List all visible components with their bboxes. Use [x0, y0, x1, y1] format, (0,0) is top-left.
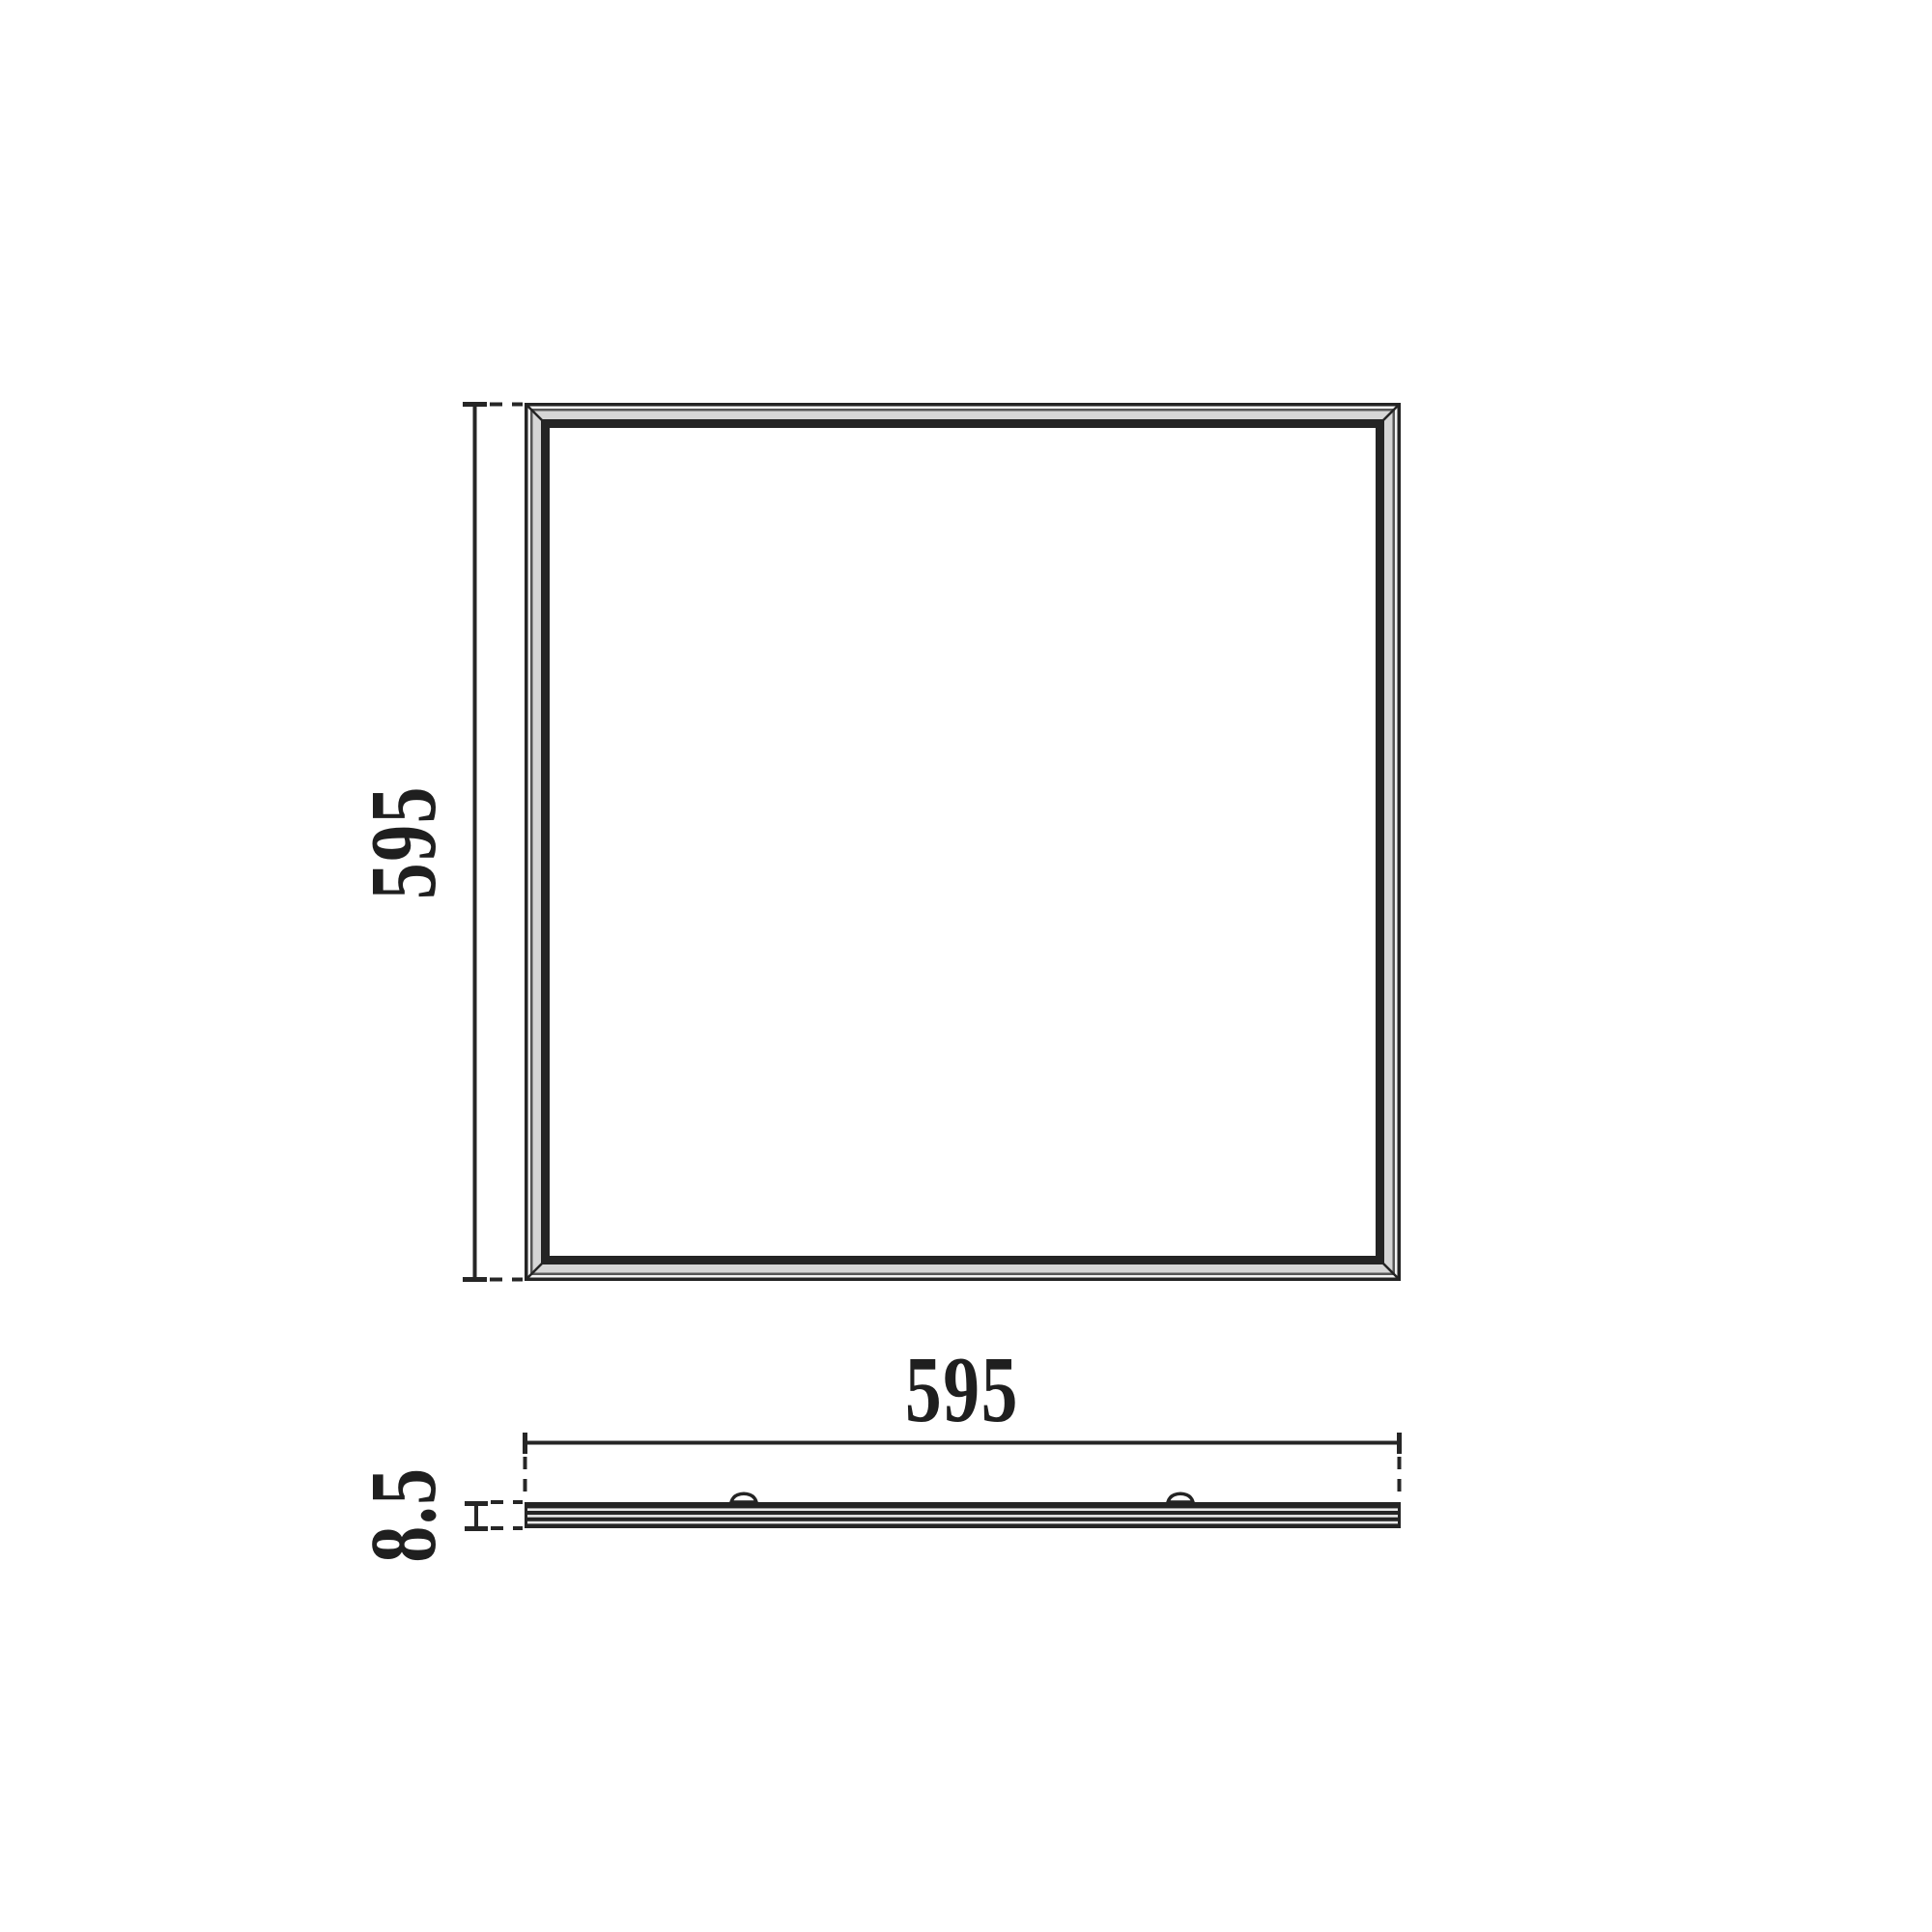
panel-interior: [550, 428, 1376, 1256]
side-view: [525, 1493, 1401, 1528]
side-profile-stripe-1: [527, 1508, 1398, 1511]
clip-bump-left: [731, 1493, 756, 1502]
thickness-dimension: 8.5: [351, 1466, 523, 1562]
side-profile-stripe-3: [527, 1521, 1398, 1524]
clip-bump-right: [1168, 1493, 1193, 1502]
side-profile-stripe-2: [527, 1515, 1398, 1518]
width-dim-label: 595: [905, 1337, 1019, 1441]
height-dimension: 595: [351, 405, 523, 1280]
thickness-dim-label: 8.5: [351, 1466, 455, 1562]
dimension-drawing: 595 595: [0, 0, 1932, 1932]
front-view: [525, 403, 1401, 1281]
width-dimension: 595: [526, 1337, 1400, 1498]
height-dim-label: 595: [351, 785, 455, 899]
drawing-canvas: 595 595: [0, 0, 1932, 1932]
